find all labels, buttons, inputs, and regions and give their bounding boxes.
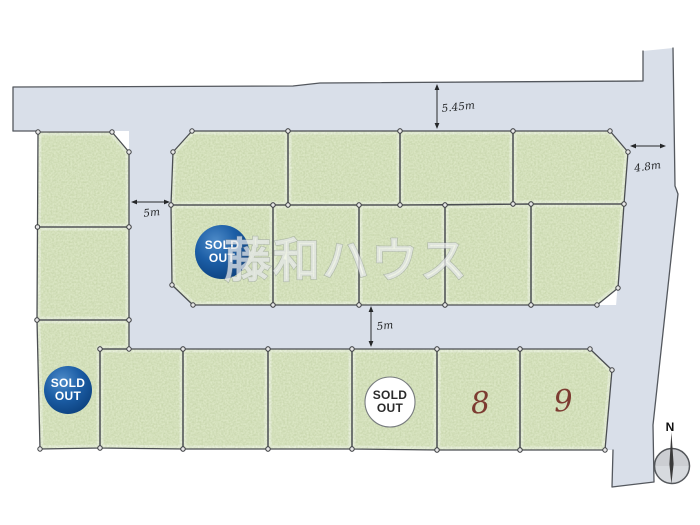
survey-point [529, 202, 533, 206]
survey-point [181, 447, 185, 451]
survey-point [169, 203, 173, 207]
survey-point [357, 203, 361, 207]
sold-out-text: SOLD [51, 376, 86, 390]
sold-out-text: SOLD [373, 388, 408, 402]
site-plan-image: 5.45m4.8m5m5m SOLDOUTSOLDOUTSOLDOUT 89 N… [0, 0, 700, 525]
lot-polygon [531, 204, 624, 305]
survey-point [191, 303, 195, 307]
survey-point [398, 203, 402, 207]
survey-point [98, 446, 102, 450]
survey-point [398, 129, 402, 133]
survey-point [435, 347, 439, 351]
road-surface [129, 305, 620, 350]
site-plan-svg: 5.45m4.8m5m5m SOLDOUTSOLDOUTSOLDOUT 89 N… [0, 0, 700, 525]
lot-polygon [171, 131, 288, 205]
lot-polygon [400, 131, 513, 205]
survey-point [271, 303, 275, 307]
survey-point [610, 368, 614, 372]
sold-out-badge-white: SOLDOUT [365, 377, 415, 427]
survey-point [595, 303, 599, 307]
lot-polygon [100, 349, 183, 449]
lot-number: 8 [470, 385, 491, 421]
compass-north-label: N [666, 420, 675, 434]
survey-point [190, 129, 194, 133]
survey-point [443, 203, 447, 207]
survey-point [127, 318, 131, 322]
survey-point [127, 225, 131, 229]
survey-point [511, 129, 515, 133]
survey-point [38, 447, 42, 451]
survey-point [271, 203, 275, 207]
survey-point [286, 203, 290, 207]
survey-point [127, 150, 131, 154]
dimension-label: 5m [376, 319, 394, 333]
lot-polygon [183, 349, 268, 449]
sold-out-text: OUT [377, 401, 404, 415]
survey-point [608, 129, 612, 133]
survey-point [35, 225, 39, 229]
survey-point [616, 286, 620, 290]
watermark-text: 藤和ハウス [224, 234, 469, 287]
road-surface [13, 81, 643, 131]
survey-point [588, 347, 592, 351]
lot-polygon [513, 131, 628, 204]
survey-point [435, 448, 439, 452]
survey-point [110, 130, 114, 134]
survey-point [350, 447, 354, 451]
survey-point [518, 347, 522, 351]
survey-point [357, 303, 361, 307]
survey-point [266, 447, 270, 451]
survey-point [350, 347, 354, 351]
survey-point [181, 347, 185, 351]
survey-point [622, 202, 626, 206]
survey-point [626, 150, 630, 154]
survey-point [127, 347, 131, 351]
lot-polygon [38, 132, 130, 227]
sold-out-text: OUT [55, 389, 82, 403]
lot-fills [37, 131, 628, 450]
lot-polygon [268, 349, 352, 449]
survey-point [98, 347, 102, 351]
survey-point [518, 448, 522, 452]
compass-rose: N [655, 420, 690, 484]
lot-polygon [37, 227, 129, 320]
lot-polygon [288, 131, 400, 205]
lot-number: 9 [553, 383, 574, 419]
watermark: 藤和ハウス [224, 234, 469, 287]
survey-point [603, 448, 607, 452]
dimension-label: 5m [143, 206, 161, 220]
survey-point [529, 303, 533, 307]
survey-point [286, 129, 290, 133]
survey-point [35, 318, 39, 322]
survey-point [511, 202, 515, 206]
sold-out-badge-blue: SOLDOUT [44, 366, 92, 414]
survey-point [443, 303, 447, 307]
survey-point [36, 130, 40, 134]
survey-point [266, 347, 270, 351]
survey-point [171, 150, 175, 154]
survey-point [170, 283, 174, 287]
